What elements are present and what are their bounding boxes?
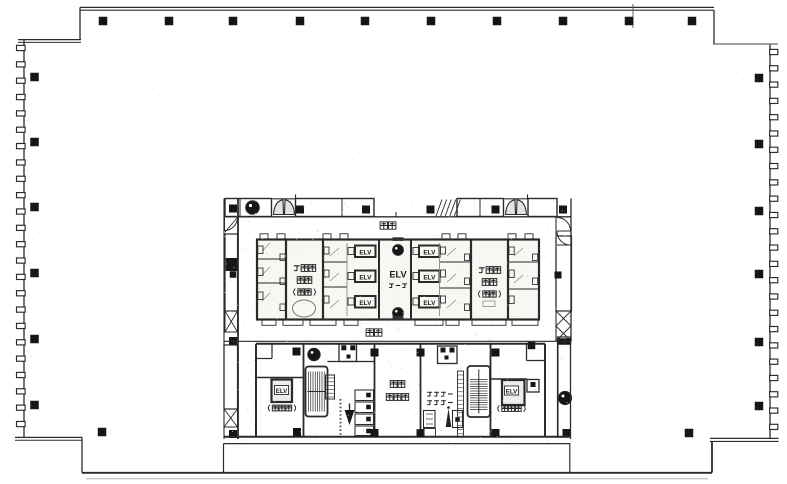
svg-text:ELV: ELV (359, 275, 372, 282)
svg-text:ELV: ELV (359, 300, 372, 307)
svg-text:ELV: ELV (276, 388, 288, 395)
svg-text:ELV: ELV (423, 275, 436, 282)
svg-text:ELV: ELV (389, 270, 407, 280)
svg-text:ELV: ELV (506, 388, 518, 395)
svg-text:ELV: ELV (359, 250, 372, 257)
svg-text:ELV: ELV (423, 300, 436, 307)
svg-text:ELV: ELV (423, 250, 436, 257)
